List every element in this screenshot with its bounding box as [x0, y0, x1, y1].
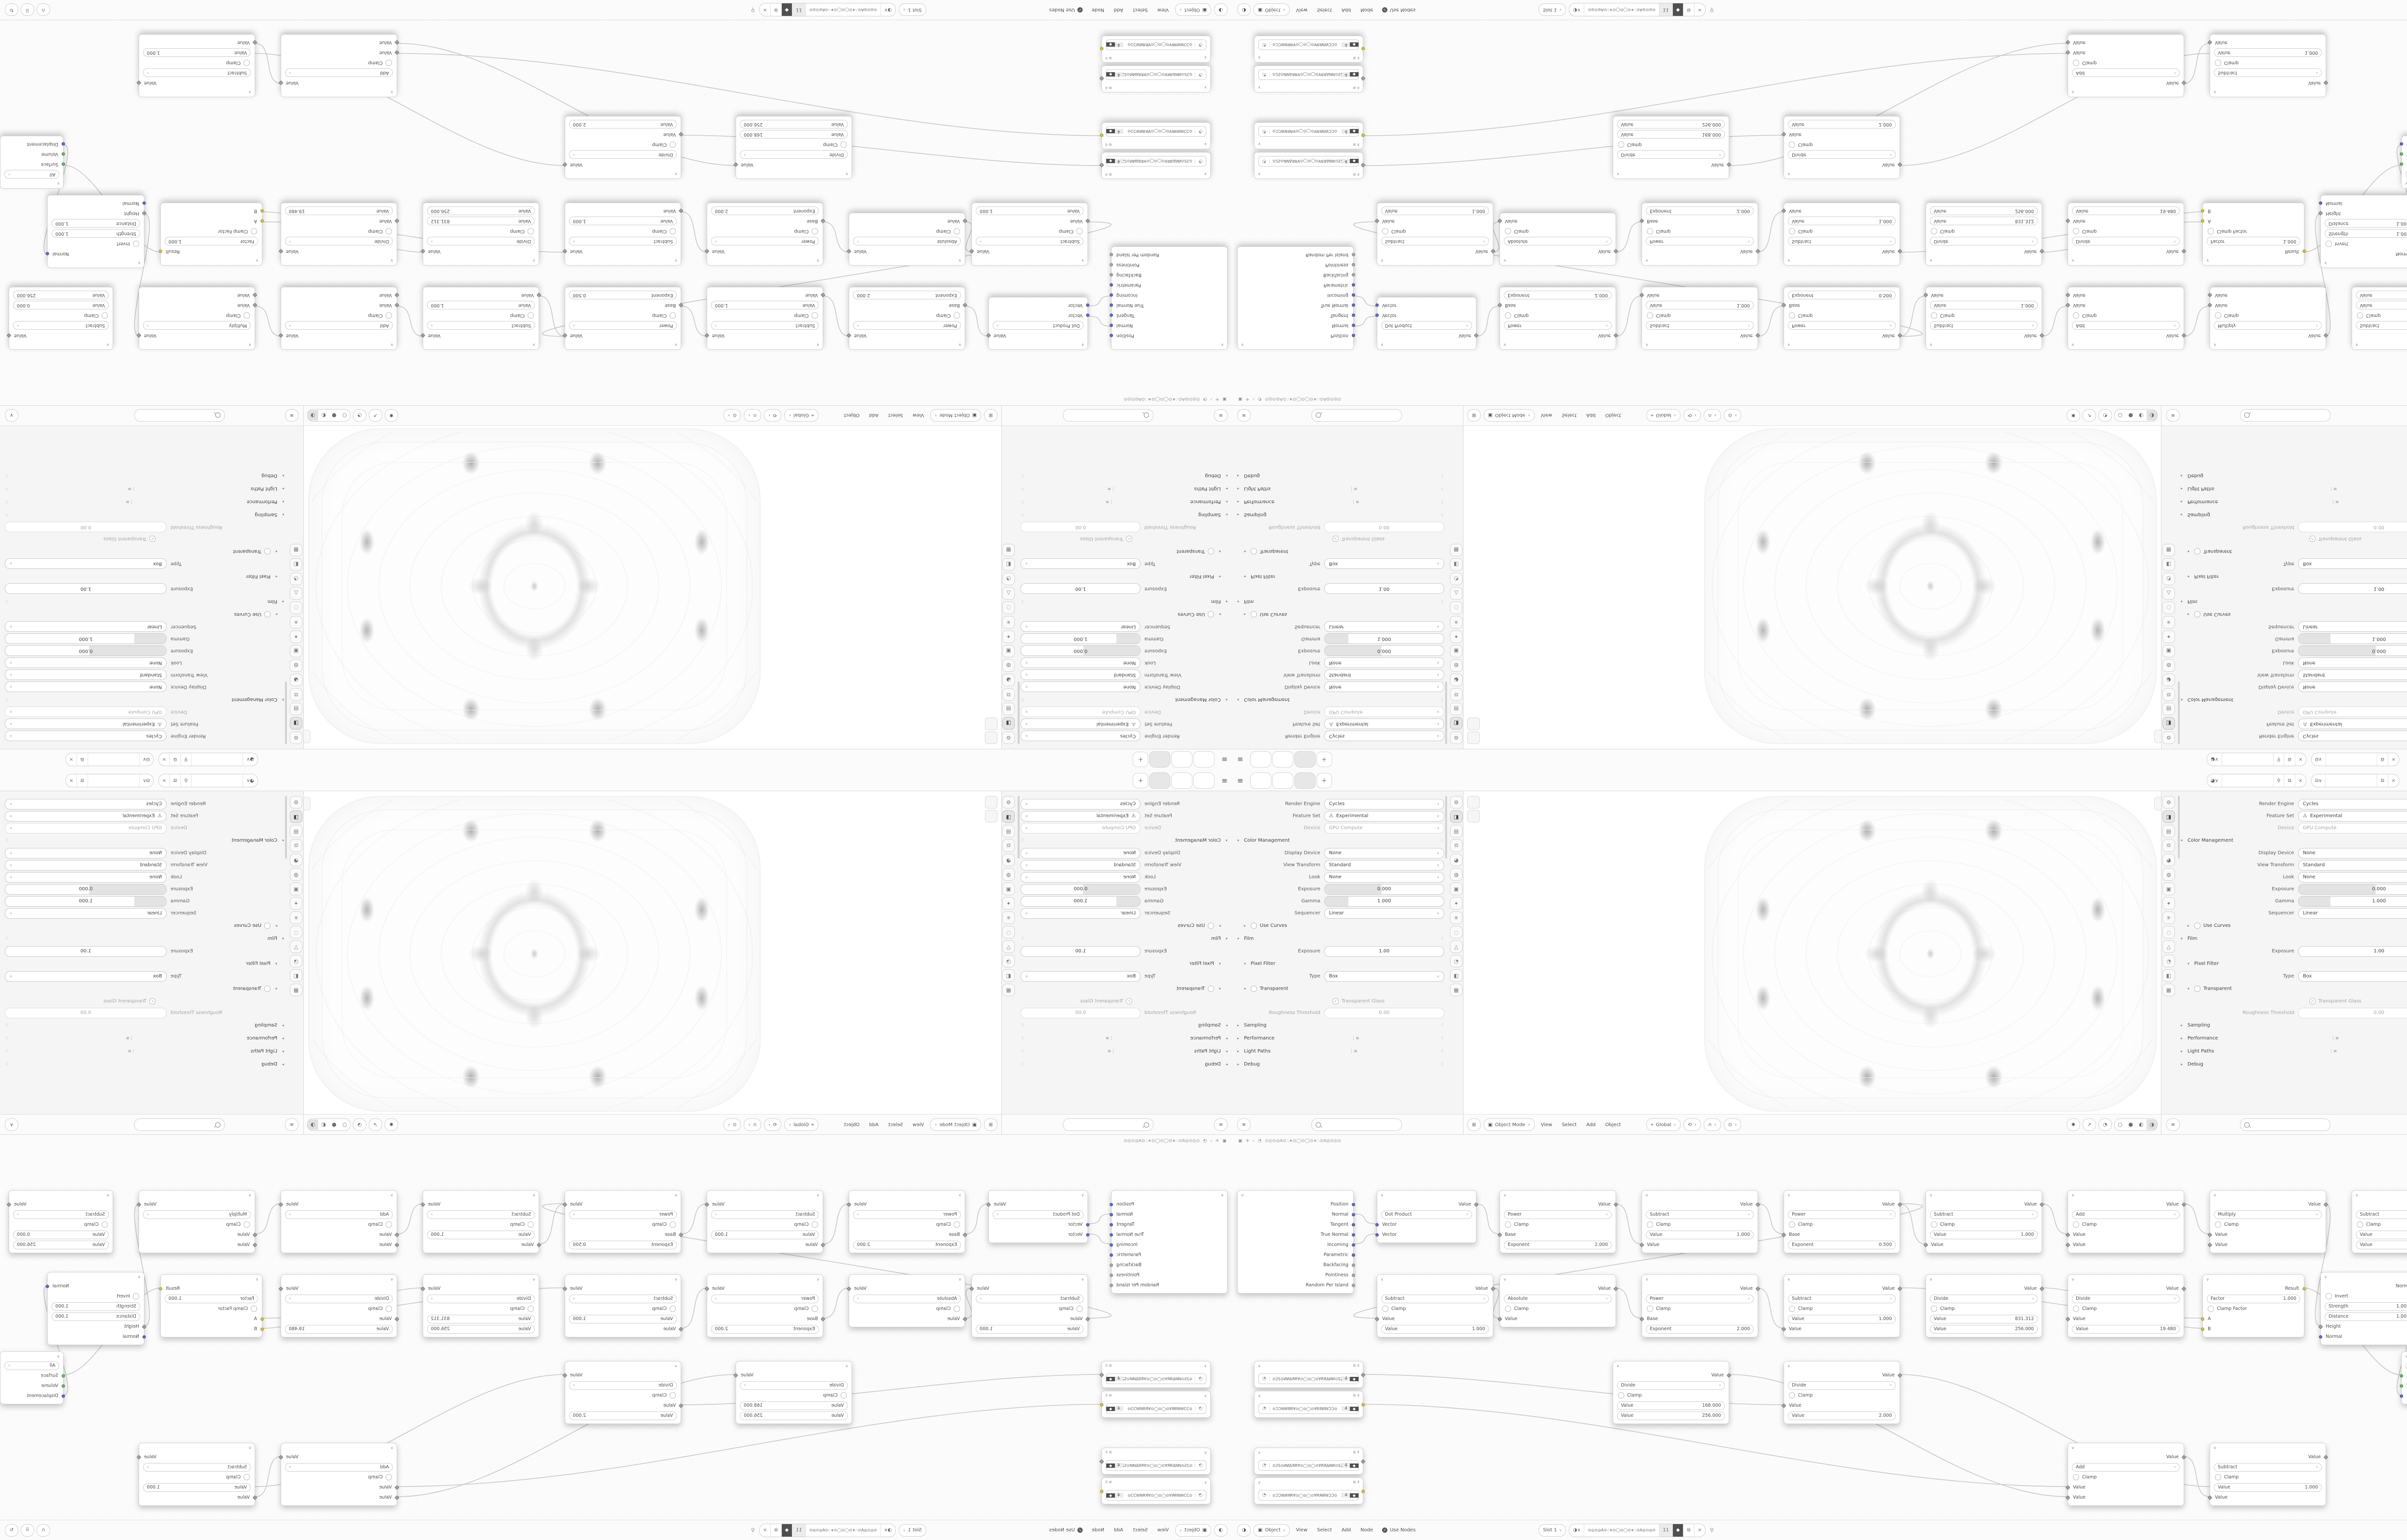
operation-dropdown[interactable]: Subtract∨: [427, 1210, 535, 1219]
socket-out[interactable]: [279, 1455, 284, 1460]
scrollbar[interactable]: [285, 796, 287, 859]
node-header[interactable]: ∨⧉ 4: [1102, 1391, 1210, 1400]
duplicate-button[interactable]: ⧉: [2377, 774, 2387, 787]
props-tab[interactable]: ⧉: [1450, 839, 1462, 852]
node-header[interactable]: ∨: [1784, 1275, 1900, 1283]
prop-dropdown[interactable]: None∨: [1021, 872, 1140, 883]
socket-in[interactable]: [679, 1403, 684, 1408]
socket-in[interactable]: [253, 293, 258, 298]
socket-in[interactable]: [395, 219, 400, 224]
socket-out[interactable]: [1110, 1273, 1113, 1277]
prop-dropdown[interactable]: None∨: [5, 682, 167, 693]
socket-out[interactable]: [1100, 1403, 1103, 1407]
node-math-subtract[interactable]: ∨ValueSubtract∨ClampValue1.000Value: [565, 203, 681, 266]
node-math-absolute[interactable]: ∨ValueAbsolute∨ClampValue: [1500, 1274, 1616, 1327]
search-input[interactable]: [1324, 412, 1379, 419]
checkbox[interactable]: ✓: [149, 536, 155, 542]
node-material-datablock[interactable]: ∨⧉ 4◔⊙ƆƆWИЯR∀⊙◯⊙◯⊙∀RЯИWƆƆ⊙4◆: [1101, 1477, 1211, 1504]
section-header[interactable]: ▾Pixel Filter: [1021, 570, 1228, 583]
socket-in[interactable]: [2066, 1485, 2071, 1490]
socket-out[interactable]: [970, 249, 974, 254]
socket-out[interactable]: [1110, 273, 1113, 277]
node-math-divide[interactable]: ∨ValueDivide∨ClampValue168.000Value256.0…: [736, 1361, 852, 1424]
props-tab[interactable]: ◕: [1450, 674, 1462, 686]
section-header[interactable]: ▾Transparent: [1237, 982, 1444, 995]
socket-out[interactable]: [1474, 1202, 1479, 1207]
props-tab[interactable]: ⚙: [290, 796, 302, 808]
prop-number[interactable]: 0.00: [1021, 522, 1140, 533]
mode-dropdown[interactable]: ▣Object Mode∨: [930, 409, 981, 422]
menu-add[interactable]: Add: [1338, 7, 1354, 13]
props-tab[interactable]: ✦: [1002, 630, 1015, 643]
shader-node-editor[interactable]: ▣✛›◔⊙◎⊙◎A⊙∴∗⊙◯⊙◯⊙∗∴⊙A◎⊙◎⊙∨PositionNormal…: [1232, 20, 2407, 405]
props-tab[interactable]: ◍: [1002, 868, 1015, 881]
socket-out[interactable]: [1491, 1286, 1496, 1291]
shading-mode-button[interactable]: ◐: [318, 410, 329, 421]
socket-out[interactable]: [705, 1202, 710, 1207]
value-field[interactable]: Strength1.000: [2325, 230, 2407, 238]
prop-number[interactable]: 1.00: [5, 946, 167, 957]
checkbox[interactable]: [1382, 228, 1388, 234]
prop-number[interactable]: 0.00: [1021, 1008, 1140, 1018]
node-math-subtract[interactable]: ∨ValueSubtract∨ClampValue1.000Value: [1642, 1190, 1758, 1253]
socket-out[interactable]: [7, 1202, 12, 1207]
node-math-add[interactable]: ∨ValueAdd∨ClampValueValue: [281, 287, 397, 350]
props-tab[interactable]: △: [1450, 587, 1462, 600]
operation-dropdown[interactable]: Power∨: [853, 1210, 961, 1219]
node-header[interactable]: ∨: [1642, 1191, 1758, 1199]
props-tab[interactable]: ✦: [290, 897, 302, 910]
node-math-multiply[interactable]: ∨ValueMultiply∨ClampValueValue: [2210, 287, 2326, 350]
workspace-tab[interactable]: [1294, 772, 1316, 789]
pin-icon[interactable]: ⚲: [750, 7, 756, 13]
operation-dropdown[interactable]: Divide∨: [1930, 1295, 2038, 1303]
socket-in[interactable]: [395, 293, 400, 298]
editor-type-button[interactable]: ≡: [2166, 1118, 2180, 1131]
node-material-datablock[interactable]: ∨⧉ 4◔⊙ƆƆWИЯR∀⊙◯⊙◯⊙∀RЯИWƆƆ⊙4◆: [1101, 122, 1211, 149]
close-icon[interactable]: ×: [66, 753, 77, 766]
operation-dropdown[interactable]: Absolute∨: [853, 1295, 961, 1303]
socket-in[interactable]: [62, 1384, 65, 1387]
checkbox[interactable]: [1789, 228, 1795, 234]
operation-dropdown[interactable]: Divide∨: [740, 151, 848, 159]
props-tab[interactable]: △: [290, 940, 302, 953]
prop-dropdown[interactable]: Box∨: [5, 971, 167, 982]
socket-in[interactable]: [537, 293, 542, 298]
prop-dropdown[interactable]: Box∨: [5, 559, 167, 569]
socket-in[interactable]: [395, 1485, 400, 1490]
close-icon[interactable]: ×: [2295, 774, 2306, 787]
menu-node[interactable]: Node: [1088, 7, 1108, 13]
section-header[interactable]: ▸Light Paths⋮≡⠿: [1237, 1045, 1444, 1058]
socket-out[interactable]: [1110, 1283, 1113, 1287]
menu-select[interactable]: Select: [1314, 7, 1335, 13]
node-math-power[interactable]: ∨ValuePower∨ClampBaseExponent2.000: [1500, 287, 1616, 350]
prop-dropdown[interactable]: Linear∨: [1324, 908, 1444, 919]
socket-in[interactable]: [1086, 304, 1089, 307]
props-tab[interactable]: ◔: [290, 955, 302, 967]
socket-out[interactable]: [1100, 1373, 1104, 1377]
node-header[interactable]: ∨: [565, 1191, 681, 1199]
sidebar-tab[interactable]: [303, 730, 311, 743]
props-tab[interactable]: ⚙: [1002, 796, 1015, 808]
operation-dropdown[interactable]: Divide∨: [427, 1295, 535, 1303]
editor-type-button[interactable]: ⊞: [1467, 409, 1481, 422]
node-header[interactable]: ∨: [281, 88, 397, 97]
props-tab[interactable]: ◕: [290, 674, 302, 686]
checkbox[interactable]: [2073, 228, 2079, 234]
node-header[interactable]: ∨⧉ 4: [1255, 53, 1363, 62]
node-math-divide[interactable]: ∨ValueDivide∨ClampValue831.312Value256.0…: [1926, 1274, 2042, 1337]
socket-out[interactable]: [563, 334, 568, 338]
editor-type-button[interactable]: ≡: [285, 1118, 298, 1131]
menu-select[interactable]: Select: [1558, 1122, 1580, 1128]
node-material-output[interactable]: ∨All∨SurfaceVolumeDisplacement: [0, 1351, 64, 1404]
shading-mode-button[interactable]: ○: [339, 410, 350, 421]
node-math-divide[interactable]: ∨ValueDivide∨ClampValueValue19.480: [281, 203, 397, 266]
socket-in[interactable]: [62, 1394, 65, 1398]
checkbox[interactable]: [1251, 611, 1257, 617]
node-header[interactable]: ∨: [2068, 257, 2184, 265]
node-header[interactable]: ∨⧉ 4: [1102, 53, 1210, 62]
operation-dropdown[interactable]: Subtract∨: [13, 1210, 109, 1219]
socket-out[interactable]: [970, 1286, 974, 1291]
duplicate-button[interactable]: ⧉: [1683, 1524, 1694, 1537]
operation-dropdown[interactable]: Power∨: [1646, 237, 1754, 246]
checkbox[interactable]: [1505, 312, 1511, 319]
unlink-button[interactable]: ×: [760, 4, 771, 16]
node-header[interactable]: ∨: [2068, 1443, 2184, 1452]
props-tab[interactable]: ✳: [1002, 616, 1015, 629]
checkbox[interactable]: [670, 312, 676, 319]
editor-type-button[interactable]: ≡: [2166, 409, 2180, 422]
checkbox[interactable]: [2073, 1474, 2079, 1480]
node-header[interactable]: ∨: [1500, 1275, 1616, 1283]
socket-out[interactable]: [1352, 314, 1355, 317]
prop-dropdown[interactable]: Standard∨: [2298, 670, 2407, 680]
section-header[interactable]: ▾Film⠿: [5, 932, 284, 945]
node-math-add[interactable]: ∨ValueAdd∨ClampValueValue: [2068, 1443, 2184, 1506]
socket-in[interactable]: [260, 209, 264, 213]
socket-in[interactable]: [260, 1327, 264, 1331]
props-tab[interactable]: ◕: [290, 854, 302, 866]
socket-out[interactable]: [1756, 249, 1760, 254]
prop-dropdown[interactable]: Linear∨: [1324, 622, 1444, 632]
socket-in[interactable]: [1375, 1317, 1380, 1322]
socket-out[interactable]: [421, 249, 426, 254]
checkbox[interactable]: [244, 1221, 250, 1228]
checkbox[interactable]: [1789, 1392, 1795, 1399]
socket-out[interactable]: [1614, 334, 1618, 338]
operation-dropdown[interactable]: Power∨: [1646, 1295, 1754, 1303]
prop-dropdown[interactable]: Standard∨: [1324, 860, 1444, 871]
props-tab[interactable]: ◨: [2162, 810, 2175, 823]
checkbox[interactable]: [1647, 1306, 1653, 1312]
prop-dropdown[interactable]: Linear∨: [5, 622, 167, 632]
value-field[interactable]: Value831.312: [1930, 1315, 2038, 1323]
prop-slider[interactable]: 1.000: [2298, 634, 2407, 644]
node-header[interactable]: ∨: [139, 1443, 255, 1452]
socket-out[interactable]: [1898, 334, 1902, 338]
snap-pivot-button[interactable]: ⊙∨: [724, 1118, 741, 1131]
section-header[interactable]: ▸Light Paths⋮≡⠿: [2181, 1045, 2407, 1058]
prop-dropdown[interactable]: Box∨: [1021, 559, 1140, 569]
props-tab[interactable]: ✦: [1002, 897, 1015, 910]
section-header[interactable]: ▾Transparent: [1237, 545, 1444, 558]
node-header[interactable]: ∨: [0, 180, 63, 188]
node-math-divide[interactable]: ∨ValueDivide∨ClampValue168.000Value256.0…: [736, 116, 852, 179]
operation-dropdown[interactable]: Divide∨: [1930, 237, 2038, 246]
prop-dropdown[interactable]: ⚠Experimental∨: [2298, 811, 2407, 821]
node-header[interactable]: ∨: [2068, 1191, 2184, 1199]
node-header[interactable]: ∨: [972, 1275, 1087, 1283]
material-field[interactable]: ◔⊙2S⊙ИИΔЯR∀⊙◯⊙◯⊙∀RЯΔИИ⊙S2⊙4◆: [1106, 156, 1206, 167]
props-tab[interactable]: ▦: [1002, 544, 1015, 556]
section-header[interactable]: ▸Debug⠿: [5, 1058, 284, 1071]
viewport-3d[interactable]: ⊞▣Object Mode∨ViewSelectAddObject⌖Global…: [1463, 405, 2161, 749]
node-material-datablock[interactable]: ∨⧉ 4◔⊙2S⊙ИИΔЯR∀⊙◯⊙◯⊙∀RЯΔИИ⊙S2⊙4◆: [1254, 65, 1363, 92]
node-math-divide[interactable]: ∨ValueDivide∨ClampValue831.312Value256.0…: [1926, 203, 2042, 266]
prop-dropdown[interactable]: GPU Compute∨: [2298, 823, 2407, 834]
checkbox[interactable]: [812, 1221, 818, 1228]
node-header[interactable]: ∨⧉ 4: [1102, 1361, 1210, 1370]
socket-in[interactable]: [679, 1327, 684, 1332]
node-material-datablock[interactable]: ∨⧉ 4◔⊙ƆƆWИЯR∀⊙◯⊙◯⊙∀RЯИWƆƆ⊙4◆: [1254, 36, 1363, 63]
section-header[interactable]: ▸Debug⠿: [1237, 1058, 1444, 1071]
socket-out[interactable]: [1898, 249, 1902, 254]
socket-in[interactable]: [1498, 219, 1502, 224]
socket-in[interactable]: [1782, 132, 1786, 137]
socket-out[interactable]: [1361, 47, 1365, 51]
snap-pivot-button[interactable]: ∩∨: [744, 1118, 761, 1131]
menu-add[interactable]: Add: [1111, 7, 1126, 13]
prop-dropdown[interactable]: None∨: [1021, 848, 1140, 859]
shading-mode-button[interactable]: ●: [2125, 410, 2136, 421]
section-header[interactable]: ▾Film⠿: [2181, 932, 2407, 945]
socket-out[interactable]: [1110, 263, 1113, 267]
fake-user-shield-icon[interactable]: ◆: [782, 1524, 793, 1537]
node-header[interactable]: ∨: [565, 257, 681, 265]
node-header[interactable]: ∨: [2203, 1275, 2304, 1283]
snap-pivot-button[interactable]: ⟲∨: [764, 1118, 782, 1131]
menu-object[interactable]: Object: [841, 413, 863, 418]
operation-dropdown[interactable]: Divide∨: [1788, 1381, 1896, 1390]
view-layer-icon[interactable]: ⧉∨: [140, 753, 153, 766]
search-input[interactable]: [1324, 1122, 1379, 1128]
node-material-datablock[interactable]: ∨⧉ 4◔⊙ƆƆWИЯR∀⊙◯⊙◯⊙∀RЯИWƆƆ⊙4◆: [1101, 1391, 1211, 1418]
workspace-tab[interactable]: [1149, 751, 1170, 768]
node-math-subtract[interactable]: ∨ValueSubtract∨ClampValue1.000Value: [707, 1190, 823, 1253]
node-header[interactable]: ∨: [2321, 1272, 2407, 1281]
operation-dropdown[interactable]: Subtract∨: [1646, 321, 1754, 330]
view-layer-name-field[interactable]: [88, 774, 140, 787]
pin-icon[interactable]: ⚲: [2273, 774, 2284, 787]
value-field[interactable]: Exponent0.500: [1788, 291, 1896, 300]
menu-select[interactable]: Select: [1558, 413, 1580, 418]
operation-dropdown[interactable]: Add∨: [285, 69, 393, 77]
prop-dropdown[interactable]: Cycles∨: [1021, 799, 1140, 809]
socket-out[interactable]: [1898, 1202, 1902, 1207]
node-header[interactable]: ∨: [736, 170, 852, 179]
value-field[interactable]: Value2.000: [1788, 1412, 1896, 1420]
pin-icon[interactable]: ⚲: [2273, 753, 2284, 766]
socket-in[interactable]: [1086, 219, 1090, 224]
node-header[interactable]: ∨: [1112, 341, 1227, 349]
value-field[interactable]: Value0.000: [13, 301, 109, 310]
menu-view[interactable]: View: [1154, 1527, 1172, 1533]
node-material-datablock[interactable]: ∨⧉ 4◔⊙2S⊙ИИΔЯR∀⊙◯⊙◯⊙∀RЯΔИИ⊙S2⊙4◆: [1254, 152, 1363, 179]
props-tab[interactable]: ◕: [1002, 854, 1015, 866]
prop-number[interactable]: 0.00: [5, 522, 167, 533]
section-header[interactable]: ▾Color Management⠿: [1237, 834, 1444, 847]
section-header[interactable]: ▸Performance⋮≡⠿: [1021, 495, 1228, 508]
socket-out[interactable]: [1352, 1243, 1355, 1246]
value-field[interactable]: Exponent0.500: [1788, 1241, 1896, 1249]
socket-in[interactable]: [821, 219, 826, 224]
overlay-toggle[interactable]: ✱: [385, 1118, 398, 1131]
shader-node-editor[interactable]: ▣✛›◔⊙◎⊙◎A⊙∴∗⊙◯⊙◯⊙∗∴⊙A◎⊙◎⊙∨PositionNormal…: [0, 1135, 1232, 1520]
socket-out[interactable]: [1756, 1202, 1760, 1207]
scrollbar[interactable]: [1018, 681, 1020, 744]
editor-type-button[interactable]: ◑: [1214, 4, 1228, 16]
node-material-output[interactable]: ∨All∨SurfaceVolumeDisplacement: [2401, 136, 2407, 189]
socket-out[interactable]: [2040, 1202, 2045, 1207]
operation-dropdown[interactable]: Add∨: [285, 1210, 393, 1219]
socket-out[interactable]: [1361, 1373, 1366, 1377]
material-field[interactable]: ◔⊙ƆƆWИЯR∀⊙◯⊙◯⊙∀RЯИWƆƆ⊙4◆: [1106, 1490, 1206, 1501]
socket-in[interactable]: [2319, 202, 2322, 205]
prop-dropdown[interactable]: Linear∨: [1021, 908, 1140, 919]
collapse-button[interactable]: ∨: [5, 1118, 18, 1131]
operation-dropdown[interactable]: Subtract∨: [569, 1295, 677, 1303]
node-math-absolute[interactable]: ∨ValueAbsolute∨ClampValue: [1500, 213, 1616, 266]
props-tab[interactable]: ✦: [2162, 630, 2175, 643]
duplicate-button[interactable]: ⧉: [771, 1524, 781, 1537]
workspace-tab[interactable]: [1193, 751, 1215, 768]
checkbox[interactable]: [2194, 611, 2200, 617]
node-math-power[interactable]: ∨ValuePower∨ClampBaseExponent0.500: [565, 287, 681, 350]
checkbox[interactable]: [2194, 548, 2200, 554]
scene-icon[interactable]: ◕∨: [2207, 774, 2222, 787]
menu-view[interactable]: View: [1293, 7, 1311, 13]
checkbox[interactable]: [386, 228, 392, 234]
unlink-button[interactable]: ×: [760, 1524, 771, 1537]
node-math-power[interactable]: ∨ValuePower∨ClampBaseExponent0.500: [1784, 1190, 1900, 1253]
socket-in[interactable]: [2208, 1495, 2213, 1500]
props-tab[interactable]: ✳: [290, 911, 302, 924]
mode-dropdown[interactable]: ▣Object Mode∨: [930, 1118, 981, 1131]
search-input[interactable]: [2252, 412, 2307, 419]
props-tab[interactable]: ◌: [1450, 926, 1462, 938]
socket-in[interactable]: [2400, 1374, 2403, 1377]
socket-in[interactable]: [2066, 51, 2071, 55]
socket-out[interactable]: [1100, 1459, 1104, 1464]
checkbox[interactable]: [244, 60, 250, 66]
socket-out[interactable]: [1352, 263, 1355, 267]
prop-number[interactable]: 0.00: [2298, 1008, 2407, 1018]
prop-dropdown[interactable]: None∨: [1324, 658, 1444, 668]
prop-dropdown[interactable]: GPU Compute∨: [2298, 707, 2407, 718]
node-header[interactable]: ∨: [0, 1352, 63, 1360]
socket-in[interactable]: [1086, 314, 1089, 317]
props-tab[interactable]: ◌: [2162, 926, 2175, 938]
checkbox[interactable]: [1208, 611, 1214, 617]
section-header[interactable]: ▾Color Management⠿: [5, 693, 284, 706]
editor-type-button[interactable]: ≡: [1214, 409, 1228, 422]
shading-mode-button[interactable]: ◑: [2147, 1119, 2157, 1130]
node-header[interactable]: ∨: [1642, 257, 1758, 265]
props-tab[interactable]: ▤: [1450, 825, 1462, 837]
value-field[interactable]: Value256.000: [2356, 1241, 2407, 1249]
socket-in[interactable]: [2066, 303, 2071, 308]
socket-out[interactable]: [421, 1286, 426, 1291]
section-header[interactable]: ▾Pixel Filter: [1237, 957, 1444, 970]
section-header[interactable]: ▸Debug⠿: [2181, 469, 2407, 482]
node-math-add[interactable]: ∨ValueAdd∨ClampValueValue: [2068, 34, 2184, 97]
prop-dropdown[interactable]: Standard∨: [1324, 670, 1444, 680]
snap-button[interactable]: ∩: [37, 1524, 50, 1537]
material-browse-button[interactable]: ◑∨: [1569, 4, 1584, 16]
material-field[interactable]: ◔⊙2S⊙ИИΔЯR∀⊙◯⊙◯⊙∀RЯΔИИ⊙S2⊙4◆: [1106, 1460, 1206, 1471]
scene-icon[interactable]: ◕∨: [243, 774, 258, 787]
node-math-divide[interactable]: ∨ValueDivide∨ClampValue831.312Value256.0…: [423, 203, 539, 266]
node-header[interactable]: ∨⧉ 4: [1255, 140, 1363, 149]
prop-dropdown[interactable]: Standard∨: [2298, 860, 2407, 871]
props-tab[interactable]: △: [1002, 587, 1015, 600]
operation-dropdown[interactable]: Subtract∨: [711, 321, 819, 330]
socket-out[interactable]: [847, 1286, 852, 1291]
section-header[interactable]: ▾Film⠿: [1237, 932, 1444, 945]
socket-in[interactable]: [2066, 1243, 2071, 1247]
checkbox[interactable]: [954, 1306, 960, 1312]
operation-dropdown[interactable]: Subtract∨: [1788, 1295, 1896, 1303]
props-tab[interactable]: ⧉: [2162, 688, 2175, 701]
node-header[interactable]: ∨: [1112, 1191, 1227, 1199]
operation-dropdown[interactable]: Subtract∨: [1381, 237, 1489, 246]
shading-mode-button[interactable]: ◐: [2136, 1119, 2147, 1130]
menu-view[interactable]: View: [909, 1122, 928, 1128]
prop-dropdown[interactable]: None∨: [1324, 872, 1444, 883]
value-field[interactable]: Strength1.000: [52, 230, 140, 238]
prop-dropdown[interactable]: Standard∨: [1021, 860, 1140, 871]
value-field[interactable]: Value1.000: [1646, 301, 1754, 310]
overlay-toggle[interactable]: ◔: [2098, 1118, 2112, 1131]
prop-slider[interactable]: 0.000: [5, 884, 167, 895]
material-field[interactable]: ◔⊙ƆƆWИЯR∀⊙◯⊙◯⊙∀RЯИWƆƆ⊙4◆: [1106, 126, 1206, 137]
operation-dropdown[interactable]: Subtract∨: [2214, 1463, 2322, 1472]
value-field[interactable]: Strength1.000: [2325, 1302, 2407, 1311]
value-field[interactable]: Value1.000: [976, 1325, 1084, 1334]
section-header[interactable]: ▸Use Curves: [2181, 919, 2407, 932]
socket-out[interactable]: [2303, 1287, 2306, 1290]
node-header[interactable]: ∨: [1500, 257, 1616, 265]
search-input[interactable]: [157, 412, 212, 419]
prop-number[interactable]: 1.00: [1021, 946, 1140, 957]
snap-pivot-button[interactable]: ⊙∨: [1724, 409, 1742, 422]
prop-number[interactable]: 1.00: [1324, 946, 1444, 957]
checkbox[interactable]: ✓: [1126, 998, 1132, 1004]
prop-dropdown[interactable]: ⚠Experimental∨: [1324, 811, 1444, 821]
checkbox[interactable]: ✓: [1382, 1527, 1387, 1533]
duplicate-button[interactable]: ⧉: [170, 774, 181, 787]
node-header[interactable]: ∨⧉ 4: [1102, 1478, 1210, 1487]
prop-dropdown[interactable]: None∨: [2298, 848, 2407, 859]
checkbox[interactable]: [1931, 1221, 1937, 1228]
checkbox[interactable]: [1208, 923, 1214, 929]
checkbox[interactable]: [2208, 1306, 2214, 1312]
operation-dropdown[interactable]: Subtract∨: [1930, 321, 2038, 330]
tool-button[interactable]: [985, 718, 997, 730]
